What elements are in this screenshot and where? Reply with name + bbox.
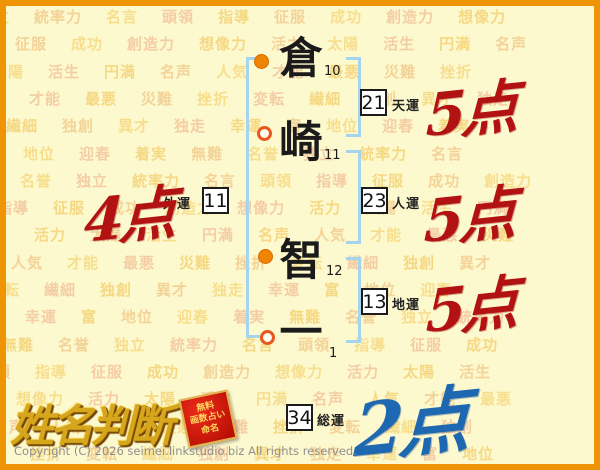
watermark-word: 円満 <box>256 388 288 409</box>
watermark-word: 統率力 <box>359 143 407 164</box>
watermark-word: 災難 <box>384 61 416 82</box>
watermark-word: 想像力 <box>237 197 285 218</box>
watermark-word: 指導 <box>0 197 29 218</box>
earth-luck-bracket-tick-bottom <box>346 340 361 343</box>
watermark-word: 太陽 <box>327 33 359 54</box>
watermark-word: 独創 <box>100 279 132 300</box>
watermark-word: 想像力 <box>275 361 323 382</box>
person-luck-score: 5点 <box>423 165 514 259</box>
total-luck-label: 総運 <box>317 410 345 429</box>
outer-luck-bracket-line <box>246 57 249 338</box>
watermark-word: 指導 <box>316 170 348 191</box>
heaven-luck-value-box: 21 <box>360 89 387 116</box>
person-luck-label: 人運 <box>392 193 420 212</box>
copyright-text: Copyright (C) 2026 seimei.linkstudio.biz… <box>14 444 357 458</box>
watermark-word: 繊細 <box>6 115 38 136</box>
watermark-word: 迎春 <box>177 306 209 327</box>
watermark-word: 指導 <box>218 6 250 27</box>
name-character: 倉 <box>277 38 325 81</box>
watermark-word: 迎春 <box>79 143 111 164</box>
watermark-word: 太陽 <box>0 61 24 82</box>
surname-char2-marker <box>257 126 272 141</box>
watermark-word: 繊細 <box>309 88 341 109</box>
watermark-word: 才能 <box>29 88 61 109</box>
watermark-word: 地位 <box>23 143 55 164</box>
watermark-word: 名誉 <box>58 334 90 355</box>
watermark-word: 名誉 <box>20 170 52 191</box>
outer-luck-value-box: 11 <box>202 187 229 214</box>
watermark-word: 名声 <box>160 61 192 82</box>
watermark-word: 地位 <box>462 443 494 464</box>
stroke-count: 12 <box>326 264 343 279</box>
watermark-word: 独走 <box>212 279 244 300</box>
watermark-word: 変転 <box>253 88 285 109</box>
stroke-count: 10 <box>324 64 341 79</box>
total-luck-value-box: 34 <box>286 404 313 431</box>
watermark-word: 名声 <box>495 33 527 54</box>
earth-luck-label: 地運 <box>392 294 420 313</box>
watermark-word: 頭領 <box>162 6 194 27</box>
watermark-word: 円満 <box>202 224 234 245</box>
watermark-word: 無難 <box>191 143 223 164</box>
stroke-count: 1 <box>329 346 337 361</box>
watermark-word: 征服 <box>274 6 306 27</box>
seimei-handan-result-page: 独立統率力名言頭領指導征服成功創造力想像力征服成功創造力想像力活力太陽活生円満名… <box>0 0 600 470</box>
watermark-word: 創造力 <box>386 6 434 27</box>
person-luck-bracket-tick-bottom <box>346 241 361 244</box>
watermark-word: 円満 <box>104 61 136 82</box>
watermark-word: 無難 <box>2 334 34 355</box>
earth-luck-score: 5点 <box>425 255 516 349</box>
name-character: 智 <box>277 240 325 283</box>
watermark-word: 円満 <box>439 33 471 54</box>
person-luck-bracket-tick-top <box>346 150 361 153</box>
watermark-word: 想像力 <box>199 33 247 54</box>
watermark-word: 征服 <box>15 33 47 54</box>
watermark-word: 創造力 <box>203 361 251 382</box>
givenname-char2-marker <box>260 330 275 345</box>
watermark-word: 異才 <box>156 279 188 300</box>
watermark-word: 才能 <box>370 224 402 245</box>
earth-luck-bracket-tick-top <box>346 257 361 260</box>
watermark-word: 着実 <box>233 306 265 327</box>
watermark-word: 独走 <box>174 115 206 136</box>
watermark-word: 富 <box>81 306 97 327</box>
watermark-word: 頭領 <box>0 361 11 382</box>
heaven-luck-bracket-tick-top <box>346 57 361 60</box>
watermark-word: 人気 <box>216 61 248 82</box>
surname-char1-marker <box>254 54 269 69</box>
watermark-word: 活生 <box>383 33 415 54</box>
watermark-word: 人気 <box>11 252 43 273</box>
watermark-word: 統率力 <box>34 6 82 27</box>
earth-luck-value-box: 13 <box>361 288 388 315</box>
watermark-word: 挫折 <box>197 88 229 109</box>
outer-luck-bracket-tick-bottom <box>246 335 260 338</box>
watermark-word: 成功 <box>330 6 362 27</box>
watermark-word: 最悪 <box>123 252 155 273</box>
watermark-word: 繊細 <box>347 252 379 273</box>
heaven-luck-bracket-tick-bottom <box>346 134 361 137</box>
watermark-word: 成功 <box>71 33 103 54</box>
watermark-word: 最悪 <box>480 388 512 409</box>
watermark-word: 創造力 <box>127 33 175 54</box>
watermark-word: 独創 <box>62 115 94 136</box>
watermark-word: 地位 <box>121 306 153 327</box>
stroke-count: 11 <box>324 148 341 163</box>
watermark-word: 災難 <box>141 88 173 109</box>
watermark-word: 名声 <box>312 388 344 409</box>
watermark-word: 統率力 <box>170 334 218 355</box>
free-kakusu-naming-badge[interactable]: 無料 画数占い 命名 <box>178 389 237 448</box>
watermark-row: 繊細独創異才独走幸運富地位迎春着実 <box>6 115 494 136</box>
watermark-word: 名誉 <box>247 143 279 164</box>
watermark-word: 異才 <box>118 115 150 136</box>
total-luck-score: 2点 <box>352 360 467 470</box>
watermark-word: 富 <box>324 279 340 300</box>
outer-luck-score: 4点 <box>83 165 174 259</box>
watermark-word: 名言 <box>106 6 138 27</box>
watermark-word: 繊細 <box>44 279 76 300</box>
watermark-word: 独立 <box>114 334 146 355</box>
watermark-word: 着実 <box>135 143 167 164</box>
watermark-word: 指導 <box>35 361 67 382</box>
watermark-word: 災難 <box>179 252 211 273</box>
watermark-row: 独立統率力名言頭領指導征服成功創造力想像力 <box>0 6 530 27</box>
givenname-char1-marker <box>258 249 273 264</box>
watermark-word: 活力 <box>309 197 341 218</box>
watermark-word: 想像力 <box>458 6 506 27</box>
watermark-word: 征服 <box>91 361 123 382</box>
name-character: 一 <box>277 312 325 355</box>
watermark-word: 成功 <box>147 361 179 382</box>
name-character: 崎 <box>277 122 325 165</box>
heaven-luck-label: 天運 <box>392 95 420 114</box>
heaven-luck-score: 5点 <box>425 59 516 153</box>
watermark-word: 迎春 <box>382 115 414 136</box>
watermark-word: 幸運 <box>25 306 57 327</box>
watermark-word: 独立 <box>0 6 10 27</box>
badge-line3: 命名 <box>200 423 220 438</box>
watermark-word: 頭領 <box>260 170 292 191</box>
watermark-word: 征服 <box>53 197 85 218</box>
watermark-word: 活力 <box>34 224 66 245</box>
person-luck-value-box: 23 <box>361 187 388 214</box>
watermark-word: 変転 <box>0 279 20 300</box>
watermark-word: 活生 <box>48 61 80 82</box>
watermark-word: 最悪 <box>85 88 117 109</box>
watermark-row: 富地位迎春着実無難名誉独立統率力名言 <box>0 143 487 164</box>
